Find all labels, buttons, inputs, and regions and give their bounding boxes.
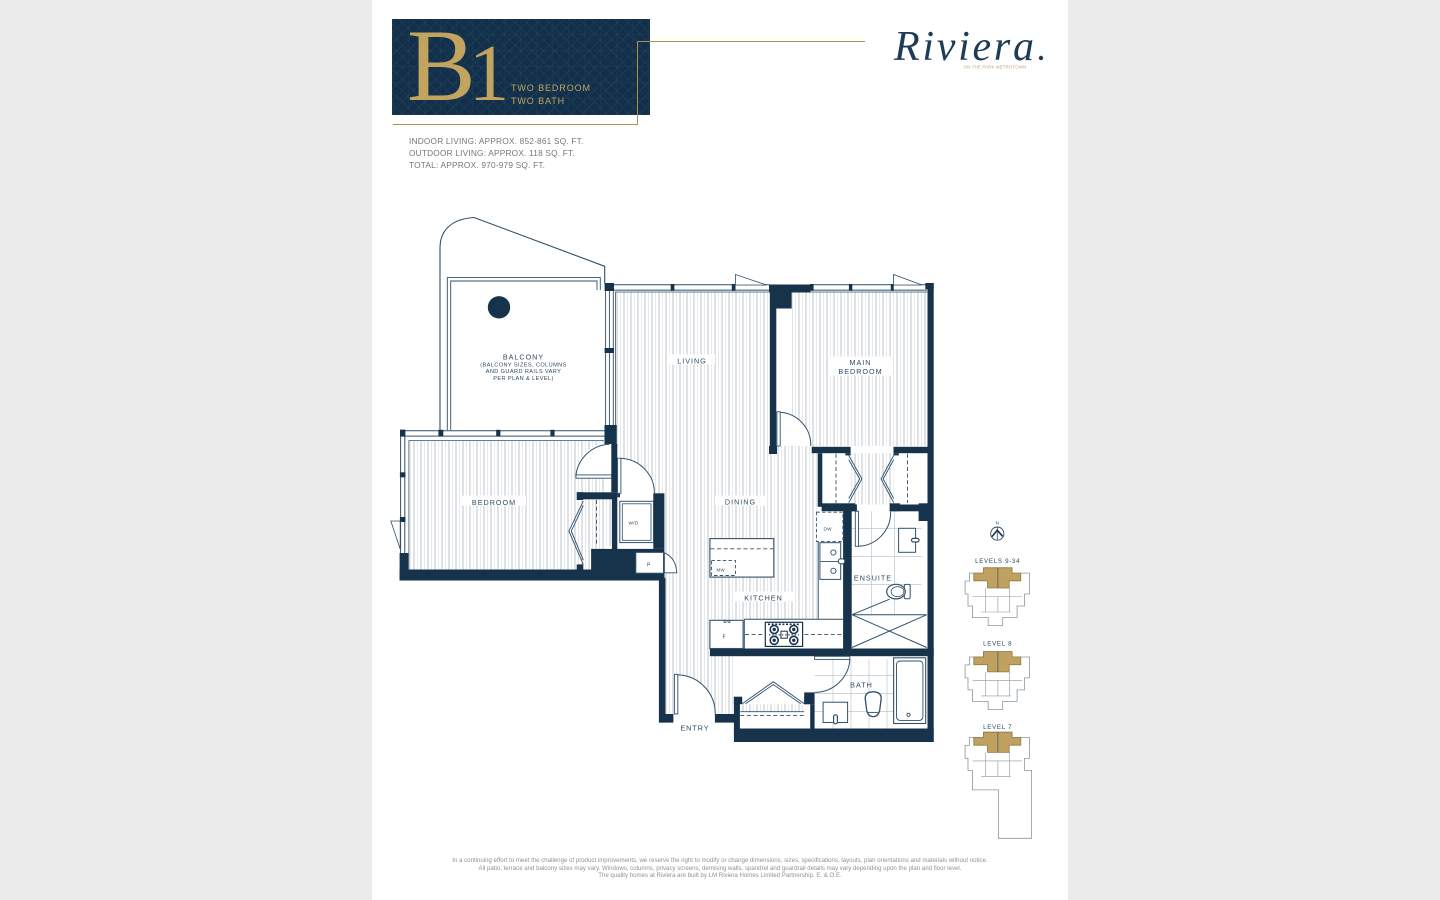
svg-text:BEDROOM: BEDROOM	[472, 498, 516, 507]
svg-text:F: F	[723, 635, 726, 641]
svg-text:LIVING: LIVING	[677, 357, 707, 366]
svg-text:Riviera: Riviera	[893, 24, 1034, 70]
svg-text:W/D: W/D	[629, 521, 639, 527]
svg-text:AND GUARD RAILS VARY: AND GUARD RAILS VARY	[486, 369, 562, 375]
svg-text:LEVELS 9-34: LEVELS 9-34	[975, 558, 1020, 565]
svg-text:MAIN: MAIN	[850, 358, 872, 367]
svg-text:BATH: BATH	[850, 680, 873, 689]
svg-text:ON THE PARK METROTOWN: ON THE PARK METROTOWN	[964, 65, 1027, 70]
svg-text:MW: MW	[717, 568, 726, 573]
svg-text:BEDROOM: BEDROOM	[838, 367, 882, 376]
svg-text:ENTRY: ENTRY	[680, 723, 709, 732]
svg-text:PER PLAN & LEVEL): PER PLAN & LEVEL)	[493, 376, 554, 382]
svg-text:DW: DW	[824, 527, 833, 532]
svg-text:LEVEL 8: LEVEL 8	[983, 640, 1012, 647]
svg-text:DINING: DINING	[725, 498, 756, 507]
svg-text:KITCHEN: KITCHEN	[744, 594, 783, 603]
svg-text:LEVEL 7: LEVEL 7	[983, 724, 1012, 731]
svg-text:N: N	[996, 521, 1000, 527]
svg-text:ENSUITE: ENSUITE	[854, 574, 892, 583]
svg-text:(BALCONY SIZES, COLUMNS: (BALCONY SIZES, COLUMNS	[480, 363, 567, 369]
svg-text:BALCONY: BALCONY	[503, 353, 544, 362]
